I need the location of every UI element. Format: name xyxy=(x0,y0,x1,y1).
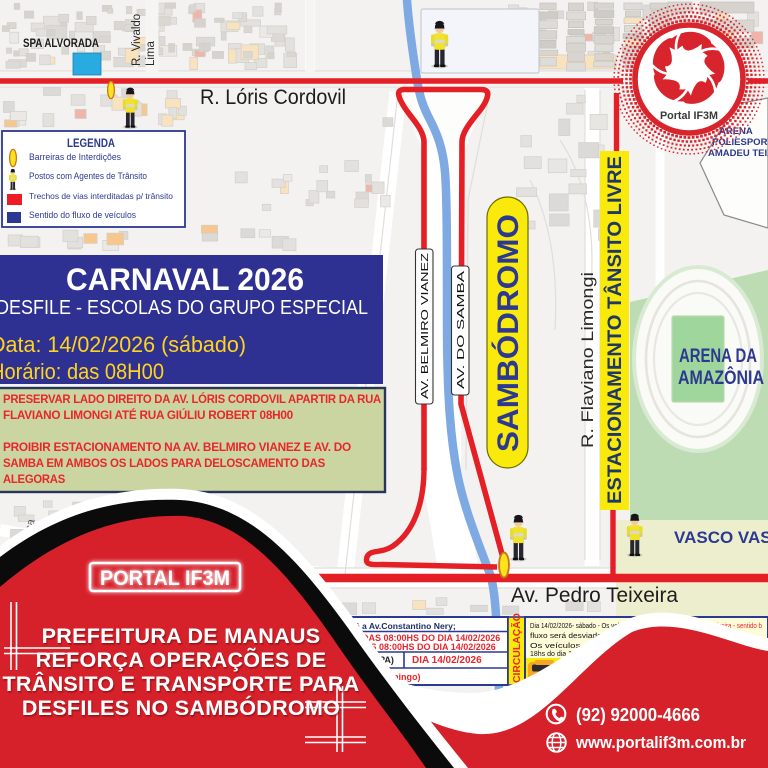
svg-text:DESFILES NO SAMBÓDROMO: DESFILES NO SAMBÓDROMO xyxy=(22,695,340,720)
svg-text:SAMBA EM AMBOS OS LADOS PARA: SAMBA EM AMBOS OS LADOS PARA DELOSCAMENT… xyxy=(3,456,325,470)
svg-text:www.portalif3m.com.br: www.portalif3m.com.br xyxy=(575,733,746,752)
svg-text:té a Av.Constantino Nery;: té a Av.Constantino Nery; xyxy=(352,621,456,631)
svg-text:REFORÇA OPERAÇÕES DE: REFORÇA OPERAÇÕES DE xyxy=(36,647,327,672)
svg-text:CIRCULAÇÃO: CIRCULAÇÃO xyxy=(510,613,523,683)
svg-text:AMAZÔNIA: AMAZÔNIA xyxy=(678,367,764,389)
svg-text:ÀS 08:00HS DO DIA 14/02/2026: ÀS 08:00HS DO DIA 14/02/2026 xyxy=(364,642,496,652)
svg-text:VASCO VASCO: VASCO VASCO xyxy=(674,528,768,547)
svg-text:PORTAL IF3M: PORTAL IF3M xyxy=(100,567,230,590)
svg-text:AV. BELMIRO VIANEZ: AV. BELMIRO VIANEZ xyxy=(420,253,431,399)
svg-text:PREFEITURA DE MANAUS: PREFEITURA DE MANAUS xyxy=(42,624,321,648)
svg-text:ESTACIONAMENTO TÂNSITO LIVRE: ESTACIONAMENTO TÂNSITO LIVRE xyxy=(604,156,626,504)
svg-text:(92) 92000-4666: (92) 92000-4666 xyxy=(576,704,700,725)
svg-text:Portal IF3M: Portal IF3M xyxy=(660,110,718,122)
svg-text:Horário: das 08H00: Horário: das 08H00 xyxy=(0,359,164,384)
svg-text:CARNAVAL 2026: CARNAVAL 2026 xyxy=(66,261,304,297)
svg-text:Postos com Agentes de Trânsito: Postos com Agentes de Trânsito xyxy=(29,171,147,181)
svg-text:LEGENDA: LEGENDA xyxy=(67,138,115,150)
svg-text:PRESERVAR LADO DIREITO DA AV.: PRESERVAR LADO DIREITO DA AV. LÓRIS CORD… xyxy=(3,391,381,406)
svg-text:Data: 14/02/2026 (sábado): Data: 14/02/2026 (sábado) xyxy=(0,332,246,357)
svg-text:ALEGORAS: ALEGORAS xyxy=(3,472,65,486)
svg-text:PROIBIR ESTACIONAMENTO NA AV.: PROIBIR ESTACIONAMENTO NA AV. BELMIRO VI… xyxy=(3,440,351,454)
svg-text:Lima: Lima xyxy=(145,40,157,66)
svg-text:Barreiras de Interdições: Barreiras de Interdições xyxy=(29,152,122,162)
svg-text:SAMBÓDROMO: SAMBÓDROMO xyxy=(491,214,525,452)
svg-text:R. Lóris Cordovil: R. Lóris Cordovil xyxy=(200,86,346,109)
svg-text:FLAVIANO LIMONGI ATÉ RUA GIÚLI: FLAVIANO LIMONGI ATÉ RUA GIÚLIU ROBERT 0… xyxy=(3,407,293,422)
svg-text:Sentido do fluxo de veículos: Sentido do fluxo de veículos xyxy=(29,210,137,220)
svg-text:AMADEU TEIX.: AMADEU TEIX. xyxy=(708,148,768,159)
svg-text:Av. Pedro Teixeira: Av. Pedro Teixeira xyxy=(511,584,678,607)
svg-text:R. Vivaldo: R. Vivaldo xyxy=(131,14,143,66)
svg-text:SPA ALVORADA: SPA ALVORADA xyxy=(23,38,99,50)
svg-text:R. Flaviano Limongi: R. Flaviano Limongi xyxy=(578,272,597,448)
svg-text:DIA 14/02/2026: DIA 14/02/2026 xyxy=(412,655,482,666)
svg-text:DESFILE - ESCOLAS DO GRUPO ESP: DESFILE - ESCOLAS DO GRUPO ESPECIAL xyxy=(0,297,368,319)
svg-text:TRÂNSITO E TRANSPORTE PARA: TRÂNSITO E TRANSPORTE PARA xyxy=(3,671,360,696)
svg-text:ARENA DA: ARENA DA xyxy=(679,346,757,367)
svg-text:Trechos de vias interditadas p: Trechos de vias interditadas p/ trânsito xyxy=(29,191,173,201)
svg-text:AV. DO SAMBA: AV. DO SAMBA xyxy=(456,271,467,389)
